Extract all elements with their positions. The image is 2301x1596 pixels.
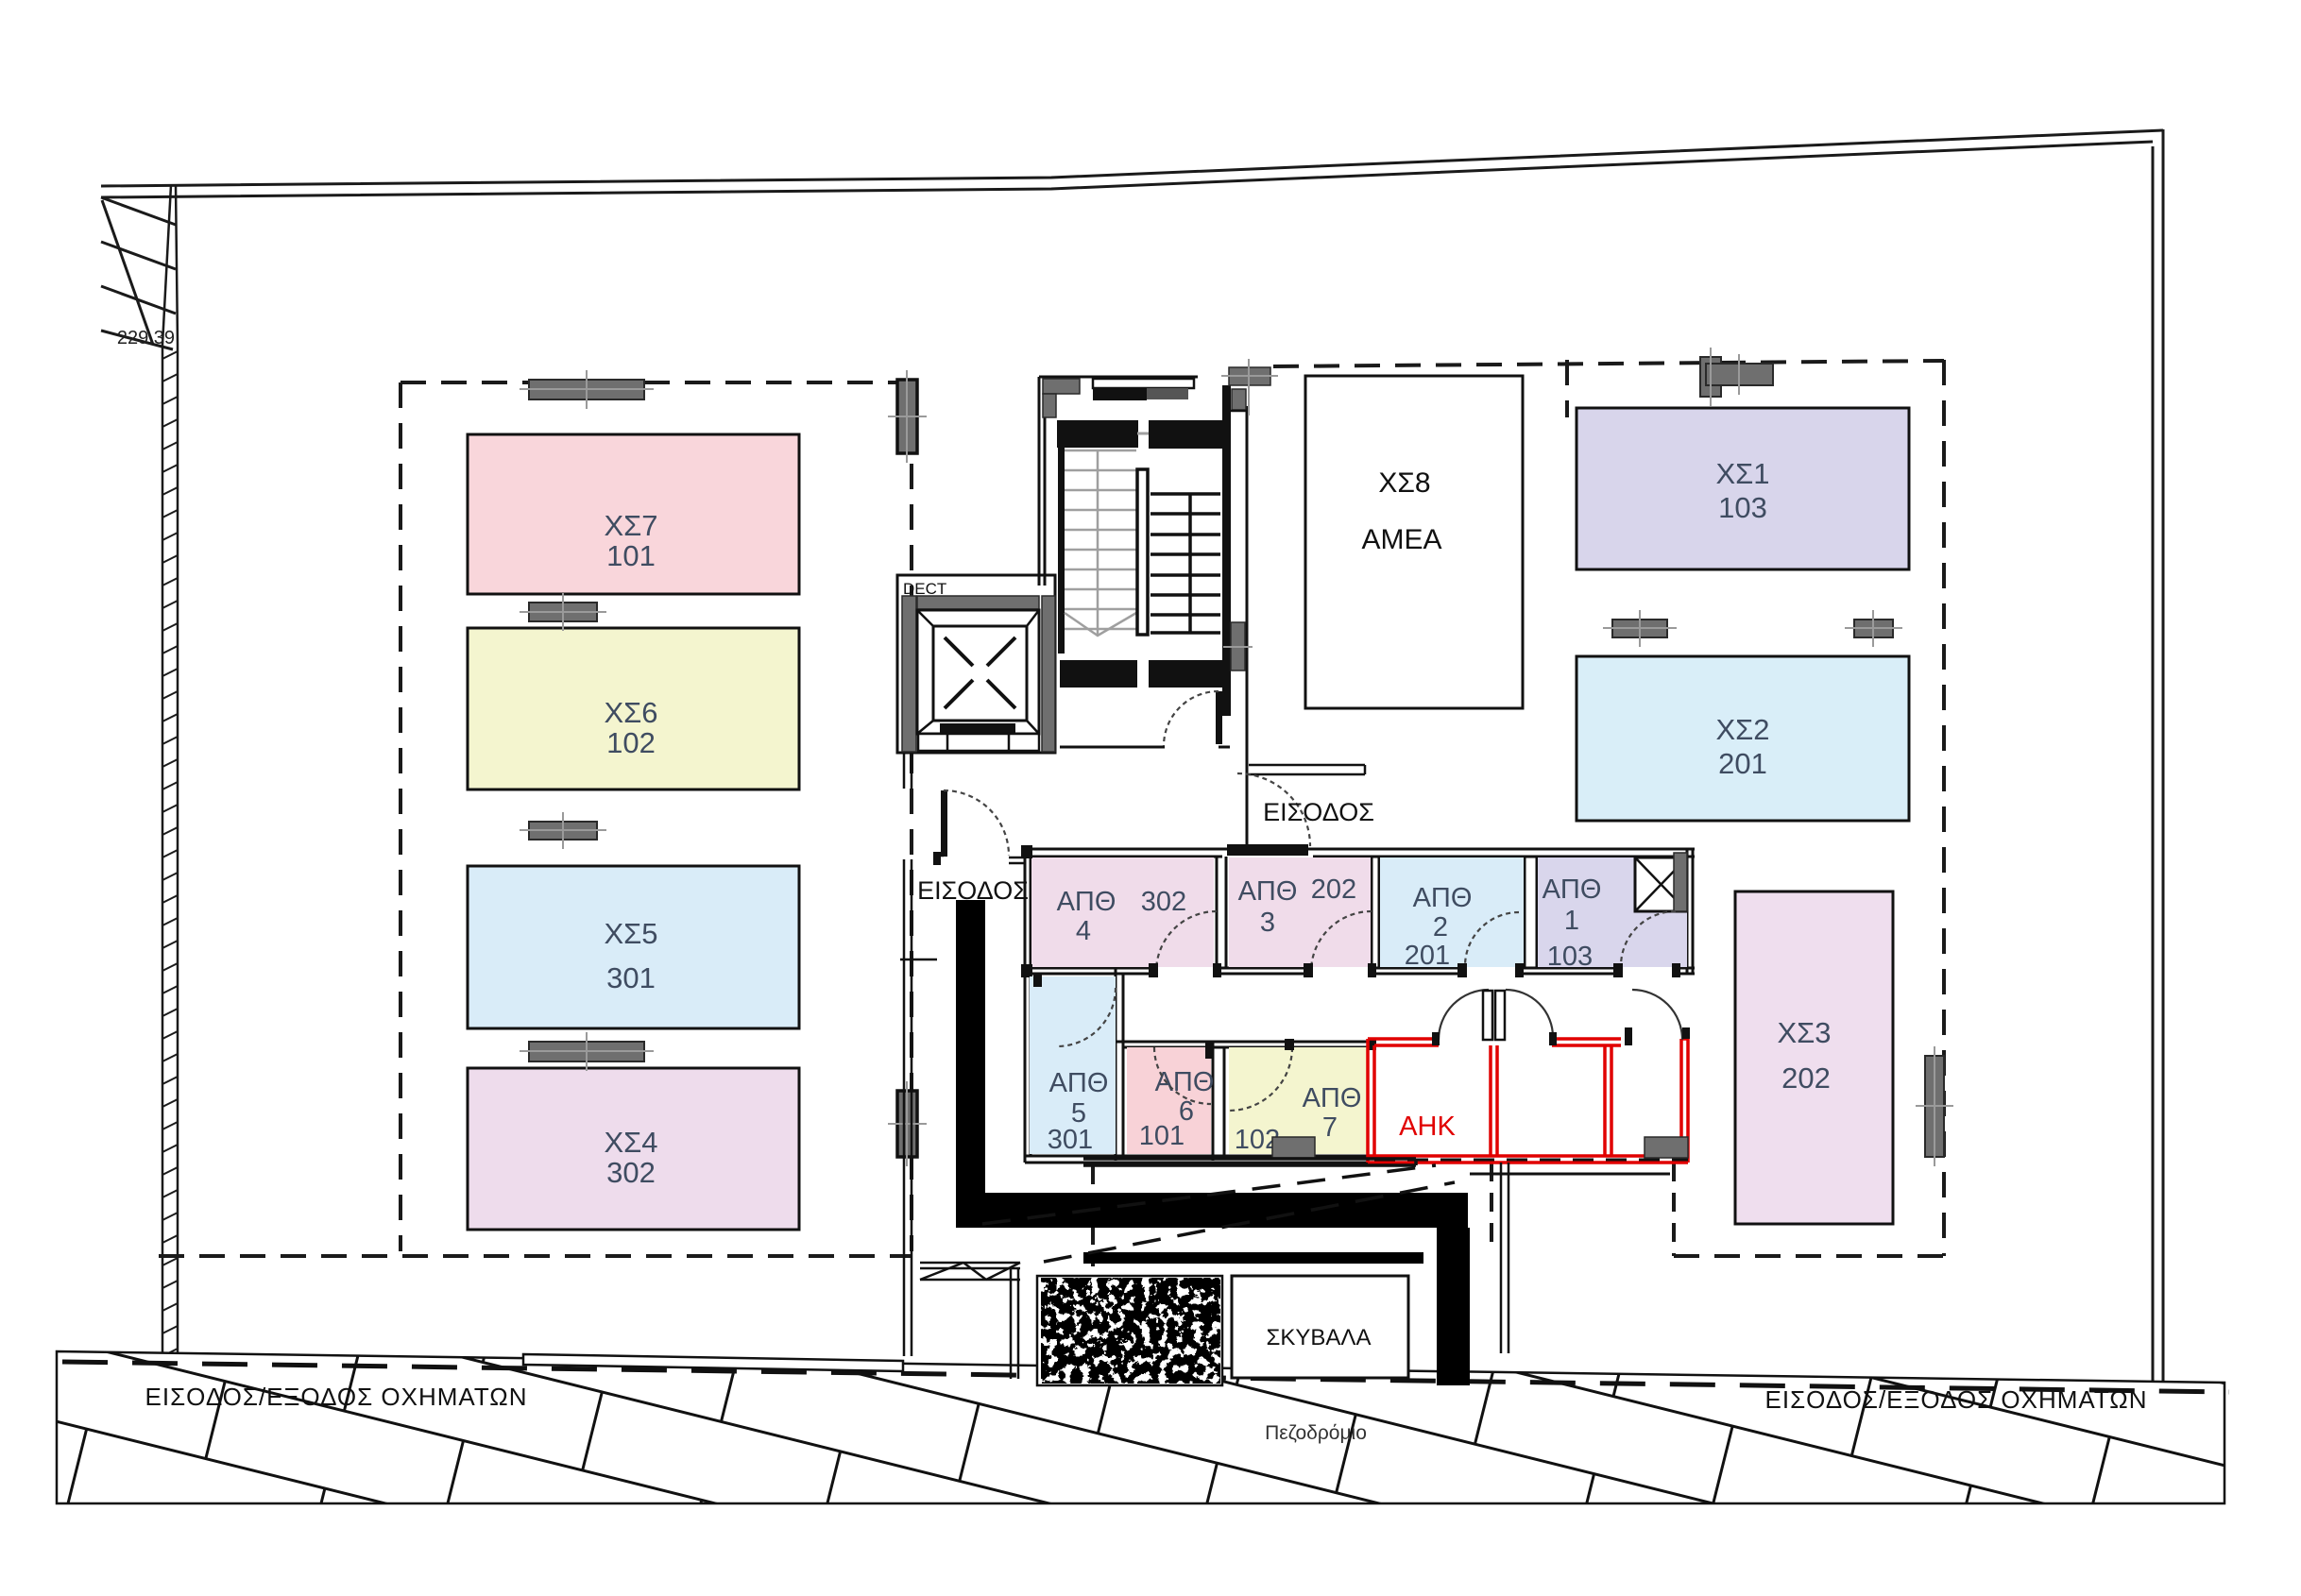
svg-text:ΑΠΘ: ΑΠΘ [1303, 1083, 1362, 1113]
svg-text:ΧΣ7: ΧΣ7 [604, 509, 657, 542]
svg-text:229.39: 229.39 [117, 328, 175, 348]
svg-text:ΧΣ1: ΧΣ1 [1715, 457, 1769, 490]
svg-text:ΧΣ4: ΧΣ4 [604, 1126, 657, 1159]
svg-text:ΧΣ8: ΧΣ8 [1378, 467, 1430, 499]
svg-text:DECT: DECT [903, 580, 946, 598]
svg-text:ΑΗΚ: ΑΗΚ [1399, 1112, 1456, 1142]
svg-text:201: 201 [1405, 941, 1450, 971]
svg-text:ΣΚΥΒΑΛΑ: ΣΚΥΒΑΛΑ [1267, 1325, 1372, 1350]
svg-text:1: 1 [1564, 906, 1579, 936]
svg-text:302: 302 [606, 1156, 656, 1189]
svg-text:3: 3 [1260, 908, 1275, 938]
svg-text:301: 301 [1048, 1125, 1093, 1155]
svg-text:ΕΙΣΟΔΟΣ/ΕΞΟΔΟΣ ΟΧΗΜΑΤΩΝ: ΕΙΣΟΔΟΣ/ΕΞΟΔΟΣ ΟΧΗΜΑΤΩΝ [145, 1383, 528, 1411]
svg-text:ΑΠΘ: ΑΠΘ [1049, 1068, 1109, 1098]
svg-text:101: 101 [1139, 1121, 1185, 1151]
svg-text:7: 7 [1322, 1112, 1338, 1143]
svg-text:ΑΠΘ: ΑΠΘ [1543, 874, 1602, 905]
svg-text:ΧΣ2: ΧΣ2 [1715, 713, 1769, 746]
svg-text:ΧΣ6: ΧΣ6 [604, 696, 657, 729]
svg-text:ΧΣ3: ΧΣ3 [1777, 1016, 1831, 1049]
svg-text:Πεζοδρόμιο: Πεζοδρόμιο [1265, 1422, 1367, 1444]
svg-text:2: 2 [1433, 912, 1448, 942]
svg-text:ΧΣ5: ΧΣ5 [604, 917, 657, 950]
svg-text:201: 201 [1718, 747, 1767, 780]
svg-text:ΑΠΘ: ΑΠΘ [1413, 883, 1473, 913]
svg-text:103: 103 [1547, 942, 1593, 972]
svg-text:102: 102 [606, 726, 656, 759]
svg-text:202: 202 [1781, 1061, 1831, 1095]
svg-text:103: 103 [1718, 491, 1767, 524]
svg-text:4: 4 [1076, 916, 1091, 946]
svg-text:302: 302 [1141, 887, 1186, 917]
svg-text:ΑΠΘ: ΑΠΘ [1238, 876, 1298, 907]
svg-text:ΕΙΣΟΔΟΣ/ΕΞΟΔΟΣ ΟΧΗΜΑΤΩΝ: ΕΙΣΟΔΟΣ/ΕΞΟΔΟΣ ΟΧΗΜΑΤΩΝ [1765, 1385, 2148, 1414]
svg-text:101: 101 [606, 539, 656, 572]
svg-text:ΑΠΘ: ΑΠΘ [1057, 887, 1116, 917]
svg-text:ΑΠΘ: ΑΠΘ [1155, 1067, 1215, 1097]
svg-text:301: 301 [606, 961, 656, 994]
svg-text:ΑΜΕΑ: ΑΜΕΑ [1361, 524, 1441, 555]
svg-text:ΕΙΣΟΔΟΣ: ΕΙΣΟΔΟΣ [1263, 798, 1374, 826]
svg-text:202: 202 [1311, 874, 1356, 905]
